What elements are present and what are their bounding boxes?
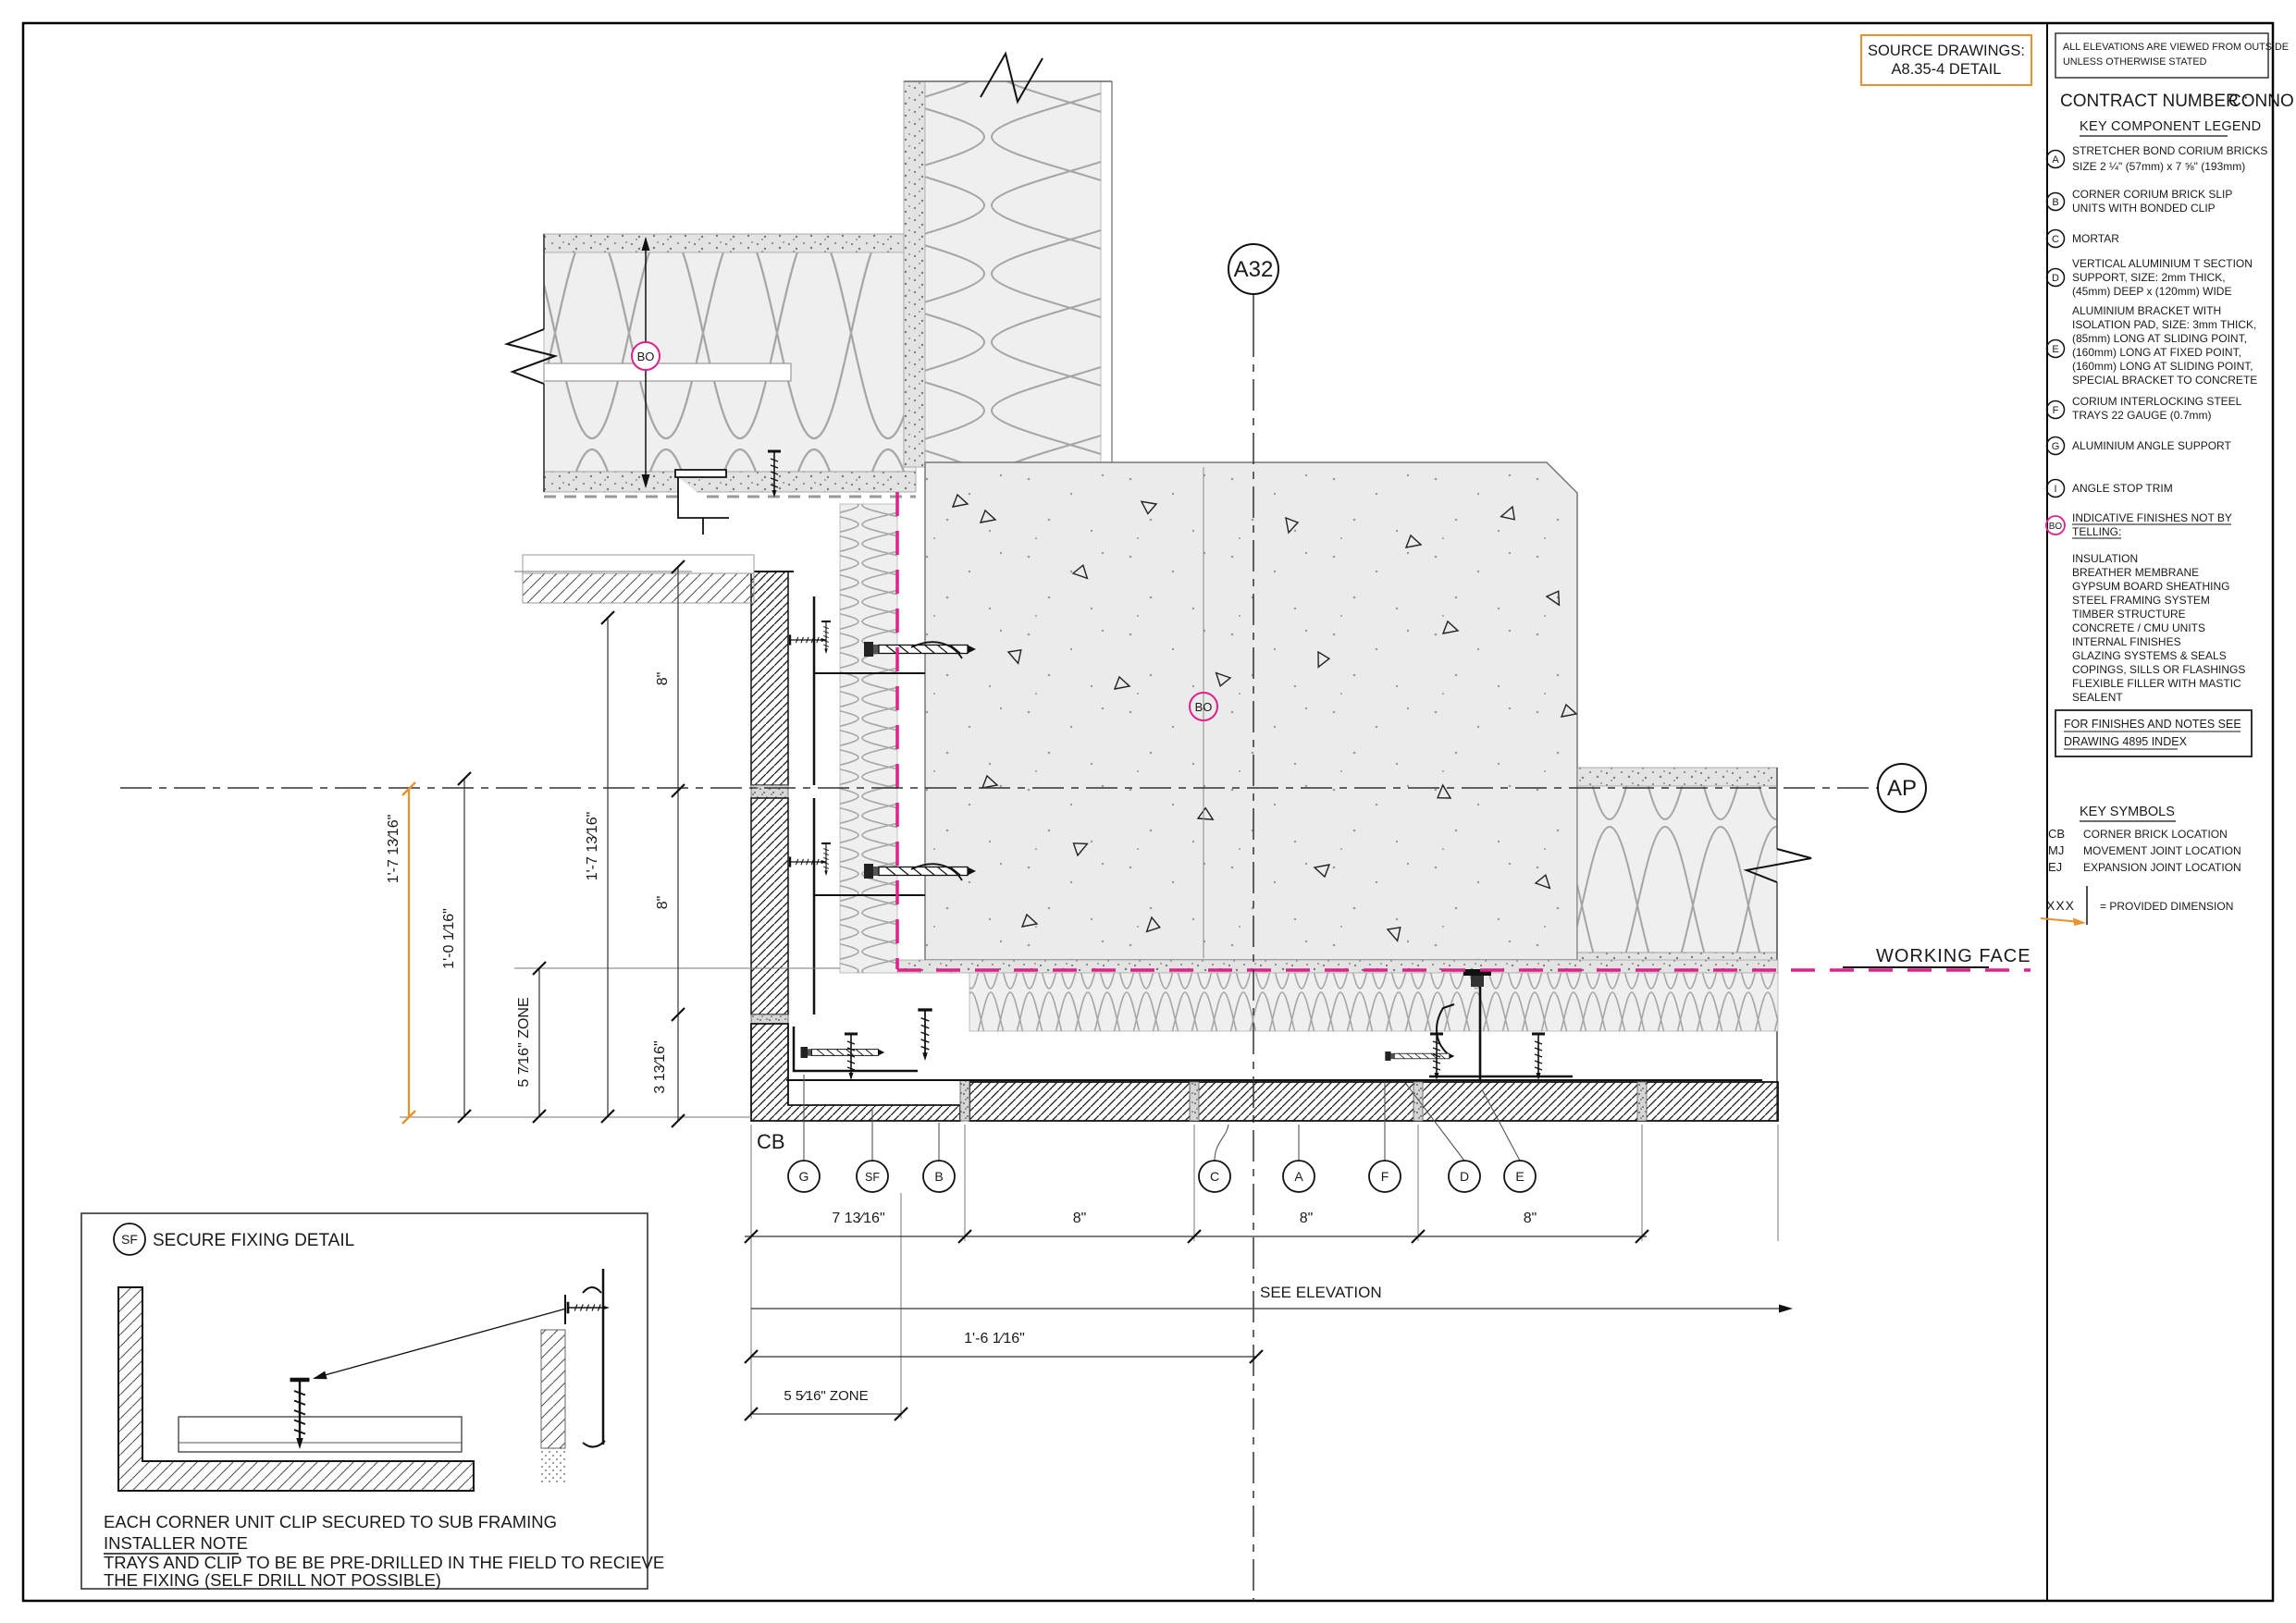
legend-line: CORNER CORIUM BRICK SLIP	[2072, 188, 2232, 201]
sf-note-3: TRAYS AND CLIP TO BE BE PRE-DRILLED IN T…	[104, 1553, 664, 1572]
callout-label: D	[1460, 1169, 1469, 1184]
dim-label-provided: 1'-7 13⁄16"	[386, 815, 401, 884]
corner-brick-label: CB	[757, 1130, 785, 1153]
sf-tray	[179, 1417, 462, 1452]
mortar-joint	[1190, 1082, 1199, 1121]
legend-line: (160mm) LONG AT SLIDING POINT,	[2072, 360, 2253, 373]
sf-title: SECURE FIXING DETAIL	[153, 1231, 354, 1250]
mortar-joint	[960, 1080, 969, 1121]
legend-line: INDICATIVE FINISHES NOT BY	[2072, 511, 2232, 524]
legend-key: D	[2052, 273, 2059, 284]
legend-line: ISOLATION PAD, SIZE: 3mm THICK,	[2072, 318, 2256, 331]
sf-sealant	[541, 1448, 565, 1483]
working-face: WORKING FACE	[1843, 946, 2031, 967]
legend-key: BO	[2049, 522, 2063, 532]
source-drawings-box: SOURCE DRAWINGS: A8.35-4 DETAIL	[1861, 35, 2031, 85]
legend-line: ALUMINIUM ANGLE SUPPORT	[2072, 439, 2231, 452]
finish-line: GYPSUM BOARD SHEATHING	[2072, 580, 2229, 593]
bo-marker-label: BO	[637, 350, 655, 363]
mortar-joint	[1637, 1082, 1647, 1121]
legend-key: F	[2053, 405, 2059, 416]
section-bubble-ap-label: AP	[1887, 776, 1917, 801]
legend-line: UNITS WITH BONDED CLIP	[2072, 202, 2216, 215]
callout-label: E	[1515, 1169, 1524, 1184]
source-drawings-line2: A8.35-4 DETAIL	[1892, 61, 2002, 78]
secure-fixing-screw	[918, 1010, 932, 1061]
finishes-note-line: DRAWING 4895 INDEX	[2064, 735, 2188, 748]
symbol-key-cb: CB	[2048, 827, 2065, 841]
source-drawings-line1: SOURCE DRAWINGS:	[1868, 43, 2025, 59]
dim-label: 5 5⁄16" ZONE	[784, 1388, 868, 1404]
drawing-sheet: 1'-7 13⁄16" 1'-0 1⁄16" 1'-7 13⁄16" 5 7⁄1…	[0, 0, 2296, 1623]
legend-line: ALUMINIUM BRACKET WITH	[2072, 304, 2221, 317]
finish-line: TIMBER STRUCTURE	[2072, 608, 2186, 621]
sf-bubble-label: SF	[121, 1232, 138, 1247]
legend-key: C	[2052, 234, 2059, 245]
legend-line: CORIUM INTERLOCKING STEEL	[2072, 395, 2242, 408]
finishes-note-box: FOR FINISHES AND NOTES SEE DRAWING 4895 …	[2055, 710, 2252, 756]
right-panel: ALL ELEVATIONS ARE VIEWED FROM OUTSIDE U…	[2041, 33, 2294, 926]
finish-line: COPINGS, SILLS OR FLASHINGS	[2072, 663, 2245, 676]
symbol-label: CORNER BRICK LOCATION	[2083, 828, 2228, 841]
sf-note-2: INSTALLER NOTE	[104, 1533, 248, 1553]
legend-line: TELLING:	[2072, 525, 2121, 538]
symbol-label: EXPANSION JOINT LOCATION	[2083, 861, 2241, 874]
dim-label: 7 13⁄16"	[832, 1211, 884, 1226]
elevation-note-line2: UNLESS OTHERWISE STATED	[2063, 56, 2207, 68]
legend-line: STRETCHER BOND CORIUM BRICKS	[2072, 144, 2267, 157]
dim-label: 8"	[1300, 1211, 1314, 1226]
finishes-note-line: FOR FINISHES AND NOTES SEE	[2064, 718, 2241, 731]
provided-dimension-label: = PROVIDED DIMENSION	[2100, 900, 2233, 913]
finish-line: INTERNAL FINISHES	[2072, 635, 2181, 648]
provided-dimension-arrow	[2073, 918, 2086, 927]
elevation-note-line1: ALL ELEVATIONS ARE VIEWED FROM OUTSIDE	[2063, 42, 2289, 53]
contract-number-value: CONNO	[2228, 92, 2294, 111]
symbol-label: MOVEMENT JOINT LOCATION	[2083, 844, 2241, 857]
finish-line: SEALENT	[2072, 691, 2123, 704]
sf-note-4: THE FIXING (SELF DRILL NOT POSSIBLE)	[104, 1570, 441, 1590]
finish-line: GLAZING SYSTEMS & SEALS	[2072, 649, 2227, 662]
provided-dimension-symbol: XXX	[2046, 898, 2075, 913]
sf-detail-box: SF SECURE FIXING DETAIL EACH CORNER UNIT…	[81, 1213, 664, 1590]
top-column-assembly	[904, 54, 1112, 467]
top-wall-assembly	[507, 234, 916, 497]
mortar-joint	[1413, 1082, 1423, 1121]
legend-line: SIZE 2 ¼" (57mm) x 7 ⅝" (193mm)	[2072, 160, 2245, 173]
callout-label: G	[799, 1169, 809, 1184]
dim-label: 1'-0 1⁄16"	[441, 908, 457, 969]
legend-line: ANGLE STOP TRIM	[2072, 482, 2173, 495]
top-angle-section	[523, 573, 754, 603]
finish-line: CONCRETE / CMU UNITS	[2072, 621, 2205, 634]
legend-line: MORTAR	[2072, 232, 2119, 245]
dim-label: 5 7⁄16" ZONE	[516, 997, 532, 1087]
legend-line: (160mm) LONG AT FIXED POINT,	[2072, 346, 2241, 359]
see-elevation-label: SEE ELEVATION	[1260, 1284, 1382, 1301]
symbol-key-mj: MJ	[2048, 843, 2064, 857]
legend-key: E	[2052, 344, 2058, 355]
left-insulation-strip	[840, 504, 897, 973]
dim-label: 1'-6 1⁄16"	[964, 1331, 1025, 1346]
finish-line: STEEL FRAMING SYSTEM	[2072, 594, 2210, 607]
dim-label: 3 13⁄16"	[652, 1040, 668, 1093]
callout-label: A	[1294, 1169, 1303, 1184]
dim-label: 8"	[655, 896, 671, 910]
dim-label: 8"	[1524, 1211, 1537, 1226]
legend-line: (85mm) LONG AT SLIDING POINT,	[2072, 332, 2247, 345]
legend-items: A STRETCHER BOND CORIUM BRICKS SIZE 2 ¼"…	[2046, 144, 2267, 538]
legend-key: B	[2052, 197, 2058, 208]
legend-line: SUPPORT, SIZE: 2mm THICK,	[2072, 271, 2226, 284]
dim-label: 8"	[1073, 1211, 1087, 1226]
corner-brick	[751, 1024, 960, 1121]
symbol-key-ej: EJ	[2048, 860, 2062, 874]
contract-number-label: CONTRACT NUMBER :	[2060, 92, 2248, 111]
callout-label: C	[1210, 1169, 1219, 1184]
callout-label: F	[1381, 1169, 1389, 1184]
legend-line: VERTICAL ALUMINIUM T SECTION	[2072, 257, 2253, 270]
legend-line: TRAYS 22 GAUGE (0.7mm)	[2072, 409, 2211, 422]
key-symbols-title: KEY SYMBOLS	[2080, 805, 2175, 819]
legend-key: A	[2052, 154, 2059, 166]
bo-marker-label: BO	[1195, 700, 1213, 714]
legend-line: SPECIAL BRACKET TO CONCRETE	[2072, 374, 2257, 387]
finish-line: INSULATION	[2072, 552, 2138, 565]
dim-label: 1'-7 13⁄16"	[585, 812, 600, 881]
key-symbols: KEY SYMBOLS CB CORNER BRICK LOCATION MJ …	[2041, 805, 2241, 926]
cad-canvas: 1'-7 13⁄16" 1'-0 1⁄16" 1'-7 13⁄16" 5 7⁄1…	[0, 0, 2296, 1623]
finishes-list: INSULATION BREATHER MEMBRANE GYPSUM BOAR…	[2072, 552, 2245, 704]
legend-key: I	[2054, 484, 2056, 495]
legend-line: (45mm) DEEP x (120mm) WIDE	[2072, 285, 2231, 298]
finish-line: BREATHER MEMBRANE	[2072, 566, 2199, 579]
legend-title: KEY COMPONENT LEGEND	[2080, 119, 2261, 134]
callout-label: SF	[865, 1171, 880, 1184]
concrete-block	[925, 462, 1577, 960]
sf-note-1: EACH CORNER UNIT CLIP SECURED TO SUB FRA…	[104, 1512, 557, 1531]
dim-label: 8"	[655, 672, 671, 686]
section-bubble-a32-label: A32	[1234, 257, 1274, 282]
sf-clip-substrate	[541, 1330, 565, 1448]
working-face-label: WORKING FACE	[1876, 946, 2031, 966]
legend-key: G	[2052, 441, 2060, 452]
right-wall-assembly	[1577, 768, 1811, 1121]
elevation-note-box	[2055, 33, 2268, 78]
finish-line: FLEXIBLE FILLER WITH MASTIC	[2072, 677, 2241, 690]
top-angle-tray	[544, 363, 791, 381]
callout-label: B	[934, 1169, 943, 1184]
